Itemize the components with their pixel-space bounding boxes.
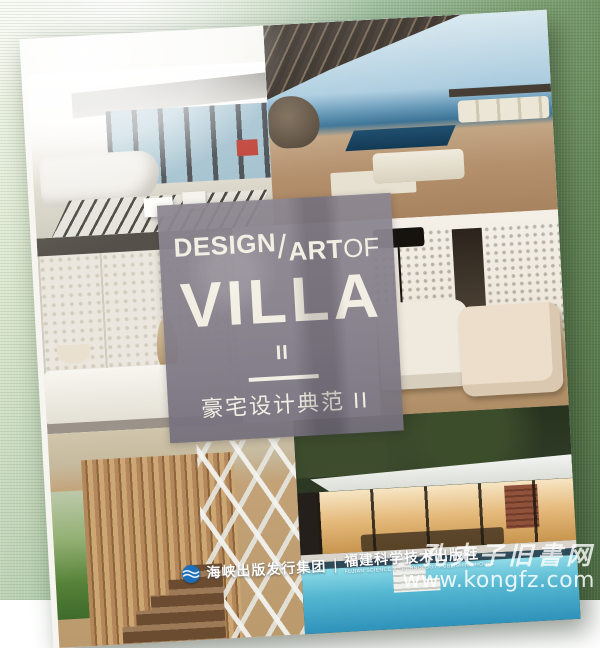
publisher-separator: | xyxy=(333,556,338,574)
publisher-logo-icon xyxy=(181,563,201,583)
watermark-site-url: www.kongfz.com xyxy=(402,569,595,592)
title-slash: / xyxy=(276,230,287,263)
publisher-logo-circle xyxy=(181,564,200,583)
title-volume-numeral: II xyxy=(275,342,289,366)
title-word-design: DESIGN xyxy=(173,229,277,261)
photo-staircase xyxy=(47,421,305,648)
terrace-daybed xyxy=(373,149,465,184)
title-main: VILLA xyxy=(179,266,384,337)
terrace-infinity-pool xyxy=(345,125,456,151)
photo-terrace xyxy=(263,10,558,226)
title-subtitle-chinese: 豪宅设计典范 II xyxy=(200,382,370,423)
kongfz-watermark: 孔夫子旧書网 www.kongfz.com xyxy=(402,543,595,592)
title-divider-rule xyxy=(249,374,319,382)
terrace-rocks xyxy=(267,95,321,150)
watermark-site-name: 孔夫子旧書网 xyxy=(402,543,595,569)
photo-scene: DESIGN / ART OF VILLA II 豪宅设计典范 II 海峡出版发… xyxy=(0,0,600,600)
terrace-sofas xyxy=(458,96,550,123)
terrace-cabana-roof xyxy=(449,84,552,98)
armchair-right xyxy=(458,302,564,398)
living-room-red-accent xyxy=(236,139,258,157)
title-word-art: ART xyxy=(288,235,344,264)
title-word-of: OF xyxy=(342,233,380,261)
title-panel: DESIGN / ART OF VILLA II 豪宅设计典范 II xyxy=(157,193,404,444)
title-line-english: DESIGN / ART OF xyxy=(173,223,380,267)
